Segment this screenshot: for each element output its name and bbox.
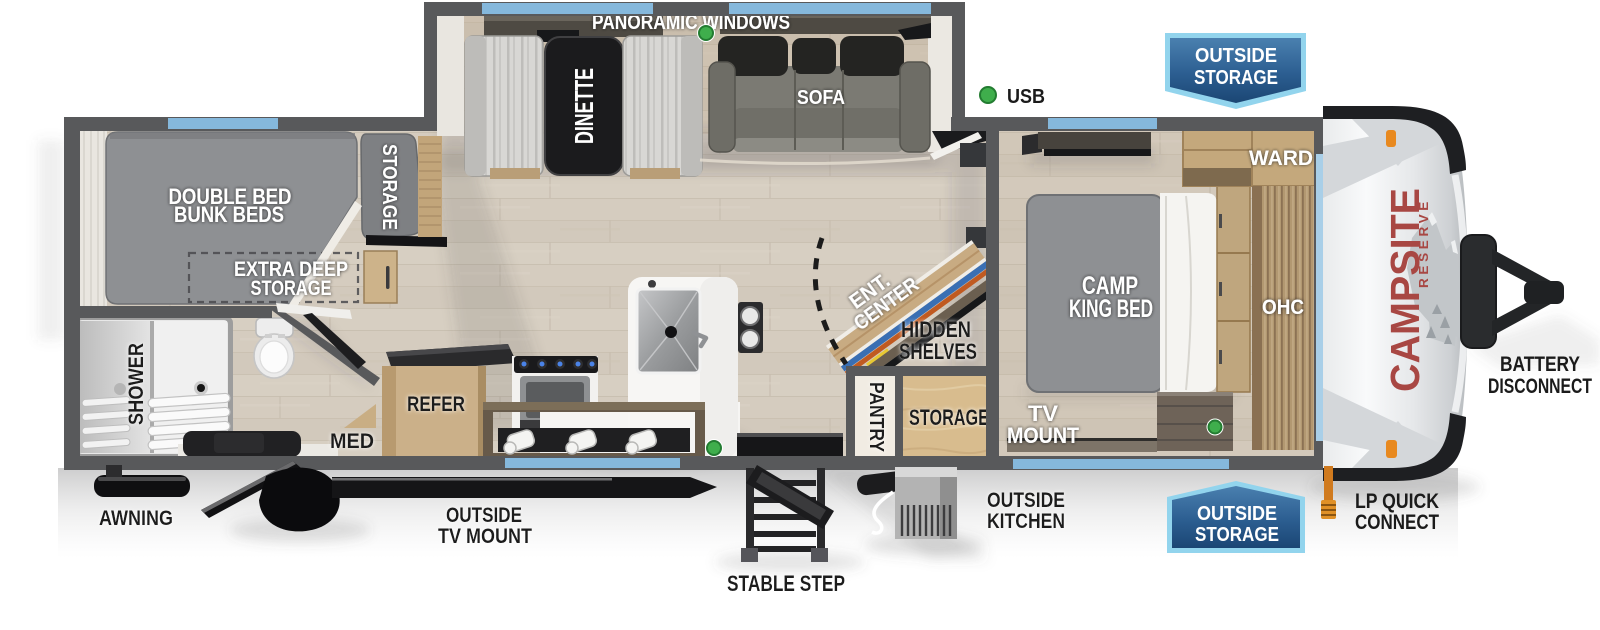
svg-text:OHC: OHC bbox=[1262, 296, 1304, 319]
svg-text:KING BED: KING BED bbox=[1069, 295, 1153, 323]
svg-text:AWNING: AWNING bbox=[99, 507, 173, 530]
svg-text:BUNK BEDS: BUNK BEDS bbox=[174, 202, 284, 227]
svg-text:MED: MED bbox=[330, 430, 374, 453]
svg-text:DINETTE: DINETTE bbox=[569, 68, 599, 144]
svg-text:OUTSIDE: OUTSIDE bbox=[1195, 44, 1277, 67]
svg-text:STORAGE: STORAGE bbox=[909, 405, 989, 430]
svg-text:SOFA: SOFA bbox=[797, 87, 845, 109]
svg-text:STABLE STEP: STABLE STEP bbox=[727, 571, 845, 596]
svg-text:MOUNT: MOUNT bbox=[1007, 423, 1079, 448]
svg-text:CONNECT: CONNECT bbox=[1355, 511, 1439, 534]
svg-text:STORAGE: STORAGE bbox=[1194, 66, 1278, 89]
svg-text:DISCONNECT: DISCONNECT bbox=[1488, 375, 1592, 398]
svg-text:SHELVES: SHELVES bbox=[899, 339, 977, 364]
svg-text:REFER: REFER bbox=[407, 393, 465, 416]
svg-text:LP QUICK: LP QUICK bbox=[1355, 490, 1439, 513]
svg-text:OUTSIDE: OUTSIDE bbox=[987, 489, 1065, 512]
svg-text:STORAGE: STORAGE bbox=[378, 144, 400, 230]
svg-text:STORAGE: STORAGE bbox=[251, 277, 332, 300]
svg-text:OUTSIDE: OUTSIDE bbox=[446, 504, 522, 527]
svg-text:WARD: WARD bbox=[1249, 147, 1313, 170]
svg-text:SHOWER: SHOWER bbox=[125, 343, 148, 425]
svg-text:OUTSIDE: OUTSIDE bbox=[1197, 502, 1277, 525]
svg-text:PANTRY: PANTRY bbox=[865, 382, 887, 453]
svg-text:USB: USB bbox=[1007, 86, 1045, 108]
svg-text:STORAGE: STORAGE bbox=[1195, 523, 1279, 546]
svg-text:BATTERY: BATTERY bbox=[1500, 353, 1580, 376]
svg-text:KITCHEN: KITCHEN bbox=[987, 510, 1065, 533]
svg-text:RESERVE: RESERVE bbox=[1416, 198, 1431, 288]
svg-text:TV MOUNT: TV MOUNT bbox=[438, 525, 532, 548]
